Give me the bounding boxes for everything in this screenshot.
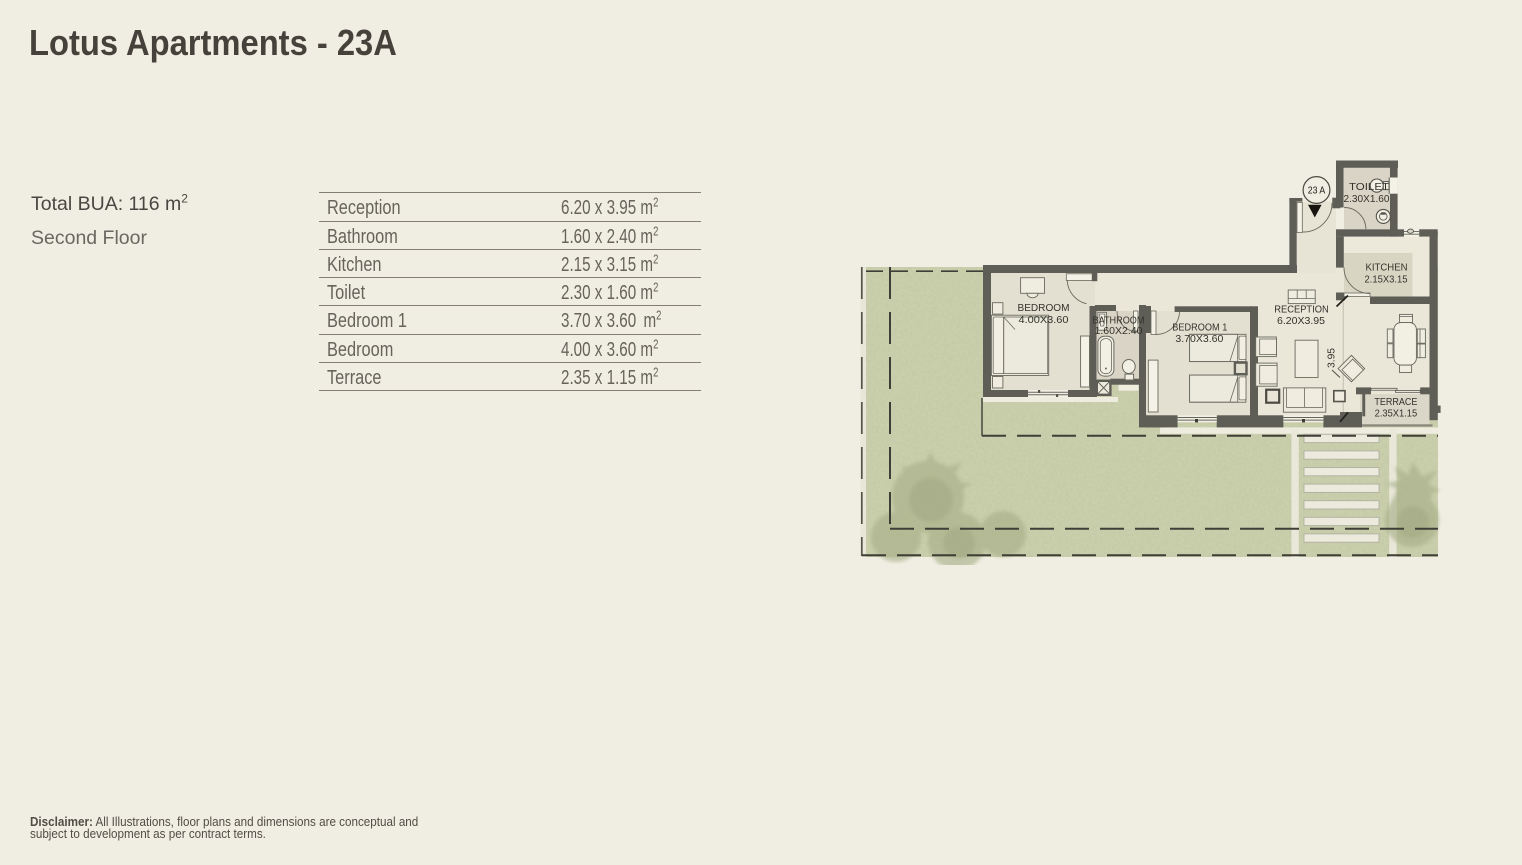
svg-text:KITCHEN: KITCHEN <box>1366 262 1408 273</box>
svg-text:4.00X3.60: 4.00X3.60 <box>1019 315 1069 326</box>
svg-text:TOILET: TOILET <box>1349 182 1390 193</box>
svg-text:BEDROOM 1: BEDROOM 1 <box>1172 323 1227 334</box>
svg-text:3.95: 3.95 <box>1327 348 1338 368</box>
svg-text:BATHROOM: BATHROOM <box>1093 315 1145 326</box>
svg-text:1.60X2.40: 1.60X2.40 <box>1095 326 1144 337</box>
svg-text:2.15X3.15: 2.15X3.15 <box>1365 275 1408 286</box>
svg-text:TERRACE: TERRACE <box>1374 397 1417 408</box>
svg-text:6.20X3.95: 6.20X3.95 <box>1277 316 1325 327</box>
svg-text:2.30X1.60: 2.30X1.60 <box>1344 194 1390 205</box>
svg-text:3.70X3.60: 3.70X3.60 <box>1175 334 1223 345</box>
svg-text:23 A: 23 A <box>1308 185 1326 196</box>
svg-text:RECEPTION: RECEPTION <box>1274 305 1329 316</box>
svg-text:2.35X1.15: 2.35X1.15 <box>1375 409 1418 420</box>
svg-text:BEDROOM: BEDROOM <box>1018 303 1070 314</box>
